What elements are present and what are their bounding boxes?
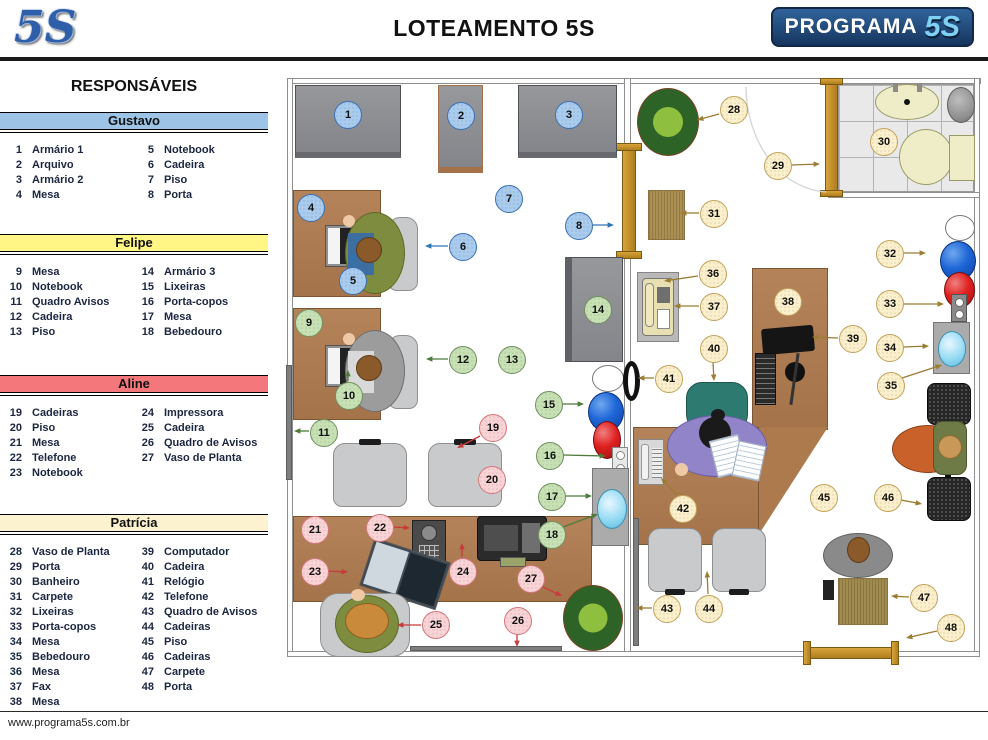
item-number: 14 bbox=[136, 266, 154, 278]
item-number: 28 bbox=[4, 546, 22, 558]
item-label: Arquivo bbox=[32, 159, 74, 171]
marker-arrowhead-35 bbox=[935, 364, 942, 369]
item-marker-43: 43 bbox=[653, 595, 681, 623]
responsavel-item: 45Piso bbox=[136, 634, 268, 649]
marker-arrowhead-6 bbox=[425, 243, 431, 248]
item-marker-20: 20 bbox=[478, 466, 506, 494]
responsavel-item: 37Fax bbox=[4, 679, 136, 694]
item-label: Mesa bbox=[164, 311, 192, 323]
responsavel-item: 44Cadeiras bbox=[136, 619, 268, 634]
marker-arrow-39 bbox=[815, 337, 838, 338]
responsavel-item: 22Telefone bbox=[4, 450, 136, 465]
marker-arrowhead-5 bbox=[349, 253, 354, 259]
marker-arrow-16 bbox=[563, 455, 603, 456]
item-number: 12 bbox=[4, 311, 22, 323]
item-number: 8 bbox=[136, 189, 154, 201]
item-label: Quadro Avisos bbox=[32, 296, 109, 308]
item-marker-37: 37 bbox=[700, 293, 728, 321]
responsavel-item: 10Notebook bbox=[4, 279, 136, 294]
responsavel-item: 23Notebook bbox=[4, 465, 136, 480]
marker-arrowhead-31 bbox=[680, 210, 686, 215]
item-label: Mesa bbox=[32, 696, 60, 708]
item-marker-32: 32 bbox=[876, 240, 904, 268]
item-marker-7: 7 bbox=[495, 185, 523, 213]
item-marker-6: 6 bbox=[449, 233, 477, 261]
responsavel-item: 19Cadeiras bbox=[4, 405, 136, 420]
item-number: 13 bbox=[4, 326, 22, 338]
item-marker-8: 8 bbox=[565, 212, 593, 240]
marker-arrowhead-47 bbox=[891, 594, 898, 600]
marker-arrowhead-11 bbox=[294, 428, 300, 433]
item-label: Porta bbox=[164, 189, 192, 201]
item-marker-9: 9 bbox=[295, 309, 323, 337]
responsavel-item: 5Notebook bbox=[136, 142, 268, 157]
responsavel-item: 4Mesa bbox=[4, 187, 136, 202]
item-number: 31 bbox=[4, 591, 22, 603]
responsavel-item: 17Mesa bbox=[136, 309, 268, 324]
marker-arrowhead-48 bbox=[906, 634, 913, 639]
item-number: 1 bbox=[4, 144, 22, 156]
responsavel-item: 20Piso bbox=[4, 420, 136, 435]
marker-arrowhead-8 bbox=[608, 222, 614, 227]
item-number: 48 bbox=[136, 681, 154, 693]
logo-programa-text: PROGRAMA bbox=[785, 15, 918, 39]
item-marker-18: 18 bbox=[538, 521, 566, 549]
responsavel-item: 16Porta-copos bbox=[136, 294, 268, 309]
item-label: Piso bbox=[164, 174, 187, 186]
marker-arrowhead-34 bbox=[923, 344, 930, 350]
item-number: 44 bbox=[136, 621, 154, 633]
marker-arrowhead-15 bbox=[578, 401, 584, 406]
item-label: Impressora bbox=[164, 407, 223, 419]
item-number: 18 bbox=[136, 326, 154, 338]
item-label: Banheiro bbox=[32, 576, 80, 588]
responsavel-item: 39Computador bbox=[136, 544, 268, 559]
item-number: 20 bbox=[4, 422, 22, 434]
responsavel-item: 48Porta bbox=[136, 679, 268, 694]
item-marker-4: 4 bbox=[297, 194, 325, 222]
marker-arrowhead-36 bbox=[664, 277, 671, 282]
item-number: 39 bbox=[136, 546, 154, 558]
marker-arrowhead-46 bbox=[915, 500, 922, 505]
item-label: Quadro de Avisos bbox=[164, 437, 257, 449]
responsavel-item: 13Piso bbox=[4, 324, 136, 339]
item-label: Carpete bbox=[164, 666, 205, 678]
item-marker-38: 38 bbox=[774, 288, 802, 316]
item-number: 38 bbox=[4, 696, 22, 708]
item-label: Piso bbox=[32, 326, 55, 338]
item-marker-27: 27 bbox=[517, 565, 545, 593]
marker-arrowhead-44 bbox=[705, 571, 710, 578]
item-marker-16: 16 bbox=[536, 442, 564, 470]
responsavel-item: 27Vaso de Planta bbox=[136, 450, 268, 465]
responsavel-item: 12Cadeira bbox=[4, 309, 136, 324]
item-label: Vaso de Planta bbox=[32, 546, 110, 558]
item-number: 15 bbox=[136, 281, 154, 293]
responsavel-item: 34Mesa bbox=[4, 634, 136, 649]
item-number: 40 bbox=[136, 561, 154, 573]
marker-arrowhead-37 bbox=[674, 303, 680, 308]
item-label: Cadeira bbox=[164, 422, 204, 434]
item-label: Telefone bbox=[32, 452, 76, 464]
item-marker-34: 34 bbox=[876, 334, 904, 362]
responsavel-item: 38Mesa bbox=[4, 694, 136, 709]
item-number: 5 bbox=[136, 144, 154, 156]
item-number: 9 bbox=[4, 266, 22, 278]
responsavel-item: 25Cadeira bbox=[136, 420, 268, 435]
item-label: Mesa bbox=[32, 636, 60, 648]
item-number: 4 bbox=[4, 189, 22, 201]
marker-arrowhead-24 bbox=[459, 543, 464, 549]
item-marker-10: 10 bbox=[335, 382, 363, 410]
item-marker-46: 46 bbox=[874, 484, 902, 512]
item-number: 25 bbox=[136, 422, 154, 434]
item-number: 7 bbox=[136, 174, 154, 186]
item-label: Vaso de Planta bbox=[164, 452, 242, 464]
item-label: Mesa bbox=[32, 189, 60, 201]
item-label: Relógio bbox=[164, 576, 204, 588]
item-marker-40: 40 bbox=[700, 335, 728, 363]
item-number: 42 bbox=[136, 591, 154, 603]
responsaveis-panel: RESPONSÁVEIS Gustavo1Armário 12Arquivo3A… bbox=[0, 78, 268, 709]
item-number: 6 bbox=[136, 159, 154, 171]
item-label: Cadeiras bbox=[164, 621, 210, 633]
responsavel-item: 36Mesa bbox=[4, 664, 136, 679]
responsavel-item: 46Cadeiras bbox=[136, 649, 268, 664]
item-label: Porta-copos bbox=[32, 621, 96, 633]
marker-arrowhead-43 bbox=[636, 605, 642, 610]
item-number: 21 bbox=[4, 437, 22, 449]
section-felipe: Felipe9Mesa10Notebook11Quadro Avisos12Ca… bbox=[0, 234, 268, 339]
item-number: 30 bbox=[4, 576, 22, 588]
marker-arrow-36 bbox=[667, 276, 698, 281]
item-label: Computador bbox=[164, 546, 229, 558]
item-marker-12: 12 bbox=[449, 346, 477, 374]
marker-arrowhead-28 bbox=[697, 116, 704, 121]
marker-arrowhead-23 bbox=[341, 569, 348, 574]
item-marker-33: 33 bbox=[876, 290, 904, 318]
marker-arrowhead-32 bbox=[920, 250, 926, 255]
item-marker-41: 41 bbox=[655, 365, 683, 393]
responsavel-item: 15Lixeiras bbox=[136, 279, 268, 294]
item-label: Lixeiras bbox=[32, 606, 74, 618]
responsavel-item: 14Armário 3 bbox=[136, 264, 268, 279]
marker-arrow-29 bbox=[791, 164, 817, 165]
item-label: Cadeira bbox=[32, 311, 72, 323]
item-number: 11 bbox=[4, 296, 22, 308]
item-label: Lixeiras bbox=[164, 281, 206, 293]
item-label: Mesa bbox=[32, 437, 60, 449]
responsavel-item: 47Carpete bbox=[136, 664, 268, 679]
marker-arrowhead-16 bbox=[600, 453, 607, 459]
responsavel-item: 41Relógio bbox=[136, 574, 268, 589]
item-label: Porta bbox=[164, 681, 192, 693]
item-label: Cadeiras bbox=[164, 651, 210, 663]
responsavel-item: 32Lixeiras bbox=[4, 604, 136, 619]
item-marker-48: 48 bbox=[937, 614, 965, 642]
responsavel-item: 2Arquivo bbox=[4, 157, 136, 172]
item-number: 47 bbox=[136, 666, 154, 678]
item-number: 26 bbox=[136, 437, 154, 449]
footer-divider bbox=[0, 711, 988, 712]
item-number: 23 bbox=[4, 467, 22, 479]
item-marker-26: 26 bbox=[504, 607, 532, 635]
item-label: Cadeira bbox=[164, 561, 204, 573]
item-marker-15: 15 bbox=[535, 391, 563, 419]
marker-arrowhead-41 bbox=[638, 375, 644, 380]
responsavel-item: 42Telefone bbox=[136, 589, 268, 604]
item-label: Armário 2 bbox=[32, 174, 83, 186]
item-marker-36: 36 bbox=[699, 260, 727, 288]
item-marker-17: 17 bbox=[538, 483, 566, 511]
marker-arrowhead-40 bbox=[711, 374, 717, 381]
responsavel-item: 9Mesa bbox=[4, 264, 136, 279]
header-divider bbox=[0, 57, 988, 61]
item-marker-23: 23 bbox=[301, 558, 329, 586]
responsavel-item: 21Mesa bbox=[4, 435, 136, 450]
section-header: Gustavo bbox=[0, 112, 268, 130]
item-number: 46 bbox=[136, 651, 154, 663]
responsavel-item: 31Carpete bbox=[4, 589, 136, 604]
responsavel-item: 11Quadro Avisos bbox=[4, 294, 136, 309]
item-label: Telefone bbox=[164, 591, 208, 603]
marker-arrowhead-33 bbox=[938, 301, 944, 306]
item-marker-39: 39 bbox=[839, 325, 867, 353]
item-marker-22: 22 bbox=[366, 514, 394, 542]
item-number: 37 bbox=[4, 681, 22, 693]
responsavel-item: 30Banheiro bbox=[4, 574, 136, 589]
item-marker-11: 11 bbox=[310, 419, 338, 447]
section-gustavo: Gustavo1Armário 12Arquivo3Armário 24Mesa… bbox=[0, 112, 268, 202]
section-patrícia: Patrícia28Vaso de Planta29Porta30Banheir… bbox=[0, 514, 268, 709]
responsavel-item: 18Bebedouro bbox=[136, 324, 268, 339]
item-number: 19 bbox=[4, 407, 22, 419]
item-number: 41 bbox=[136, 576, 154, 588]
item-number: 3 bbox=[4, 174, 22, 186]
item-label: Porta bbox=[32, 561, 60, 573]
item-label: Cadeira bbox=[164, 159, 204, 171]
item-number: 36 bbox=[4, 666, 22, 678]
marker-arrow-48 bbox=[909, 631, 937, 637]
marker-arrow-34 bbox=[903, 346, 926, 347]
item-label: Armário 1 bbox=[32, 144, 83, 156]
marker-arrowhead-25 bbox=[397, 622, 403, 627]
responsavel-item: 43Quadro de Avisos bbox=[136, 604, 268, 619]
item-label: Piso bbox=[164, 636, 187, 648]
page: 5S LOTEAMENTO 5S PROGRAMA 5S RESPONSÁVEI… bbox=[0, 0, 988, 740]
item-label: Fax bbox=[32, 681, 51, 693]
item-marker-31: 31 bbox=[700, 200, 728, 228]
item-label: Bebedouro bbox=[164, 326, 222, 338]
item-label: Mesa bbox=[32, 266, 60, 278]
item-number: 33 bbox=[4, 621, 22, 633]
item-marker-3: 3 bbox=[555, 101, 583, 129]
item-number: 32 bbox=[4, 606, 22, 618]
item-marker-29: 29 bbox=[764, 152, 792, 180]
logo-programa-5s: 5S bbox=[925, 11, 960, 44]
marker-arrowhead-17 bbox=[586, 493, 592, 498]
item-marker-1: 1 bbox=[334, 101, 362, 129]
item-label: Porta-copos bbox=[164, 296, 228, 308]
item-label: Notebook bbox=[32, 467, 83, 479]
item-number: 27 bbox=[136, 452, 154, 464]
item-label: Mesa bbox=[32, 666, 60, 678]
item-marker-14: 14 bbox=[584, 296, 612, 324]
marker-arrowhead-18 bbox=[591, 514, 598, 519]
item-number: 29 bbox=[4, 561, 22, 573]
item-label: Notebook bbox=[164, 144, 215, 156]
item-marker-42: 42 bbox=[669, 495, 697, 523]
marker-arrowhead-22 bbox=[403, 525, 410, 530]
section-aline: Aline19Cadeiras20Piso21Mesa22Telefone23N… bbox=[0, 375, 268, 480]
responsavel-item: 35Bebedouro bbox=[4, 649, 136, 664]
item-marker-44: 44 bbox=[695, 595, 723, 623]
item-marker-13: 13 bbox=[498, 346, 526, 374]
item-marker-30: 30 bbox=[870, 128, 898, 156]
item-label: Carpete bbox=[32, 591, 73, 603]
marker-arrowhead-26 bbox=[514, 641, 519, 647]
section-header: Aline bbox=[0, 375, 268, 393]
marker-arrowhead-39 bbox=[812, 335, 819, 341]
item-marker-35: 35 bbox=[877, 372, 905, 400]
item-marker-47: 47 bbox=[910, 584, 938, 612]
marker-arrowhead-10 bbox=[345, 370, 350, 376]
item-label: Notebook bbox=[32, 281, 83, 293]
item-label: Quadro de Avisos bbox=[164, 606, 257, 618]
responsavel-item: 24Impressora bbox=[136, 405, 268, 420]
footer-url: www.programa5s.com.br bbox=[8, 717, 130, 729]
item-number: 2 bbox=[4, 159, 22, 171]
responsavel-item: 6Cadeira bbox=[136, 157, 268, 172]
item-marker-45: 45 bbox=[810, 484, 838, 512]
responsavel-item: 26Quadro de Avisos bbox=[136, 435, 268, 450]
marker-arrow-35 bbox=[902, 366, 939, 378]
item-marker-2: 2 bbox=[447, 102, 475, 130]
item-label: Piso bbox=[32, 422, 55, 434]
item-number: 17 bbox=[136, 311, 154, 323]
item-marker-21: 21 bbox=[301, 516, 329, 544]
item-marker-24: 24 bbox=[449, 558, 477, 586]
section-header: Felipe bbox=[0, 234, 268, 252]
responsavel-item: 29Porta bbox=[4, 559, 136, 574]
marker-arrowhead-29 bbox=[814, 162, 821, 167]
item-label: Cadeiras bbox=[32, 407, 78, 419]
item-number: 43 bbox=[136, 606, 154, 618]
responsavel-item: 33Porta-copos bbox=[4, 619, 136, 634]
marker-arrowhead-12 bbox=[426, 356, 432, 361]
responsaveis-title: RESPONSÁVEIS bbox=[0, 78, 268, 96]
floor-plan: 1234567891011121314151617181920212223242… bbox=[285, 65, 985, 665]
item-number: 35 bbox=[4, 651, 22, 663]
responsavel-item: 28Vaso de Planta bbox=[4, 544, 136, 559]
responsavel-item: 40Cadeira bbox=[136, 559, 268, 574]
marker-arrow-18 bbox=[563, 515, 595, 527]
item-label: Armário 3 bbox=[164, 266, 215, 278]
item-number: 34 bbox=[4, 636, 22, 648]
responsavel-item: 7Piso bbox=[136, 172, 268, 187]
responsavel-item: 3Armário 2 bbox=[4, 172, 136, 187]
item-marker-5: 5 bbox=[339, 267, 367, 295]
responsaveis-sections: Gustavo1Armário 12Arquivo3Armário 24Mesa… bbox=[0, 112, 268, 709]
item-number: 24 bbox=[136, 407, 154, 419]
item-number: 16 bbox=[136, 296, 154, 308]
responsavel-item: 1Armário 1 bbox=[4, 142, 136, 157]
logo-programa5s: PROGRAMA 5S bbox=[771, 7, 974, 47]
item-label: Bebedouro bbox=[32, 651, 90, 663]
section-header: Patrícia bbox=[0, 514, 268, 532]
item-number: 22 bbox=[4, 452, 22, 464]
item-marker-19: 19 bbox=[479, 414, 507, 442]
item-number: 10 bbox=[4, 281, 22, 293]
item-marker-25: 25 bbox=[422, 611, 450, 639]
responsavel-item: 8Porta bbox=[136, 187, 268, 202]
item-number: 45 bbox=[136, 636, 154, 648]
item-marker-28: 28 bbox=[720, 96, 748, 124]
